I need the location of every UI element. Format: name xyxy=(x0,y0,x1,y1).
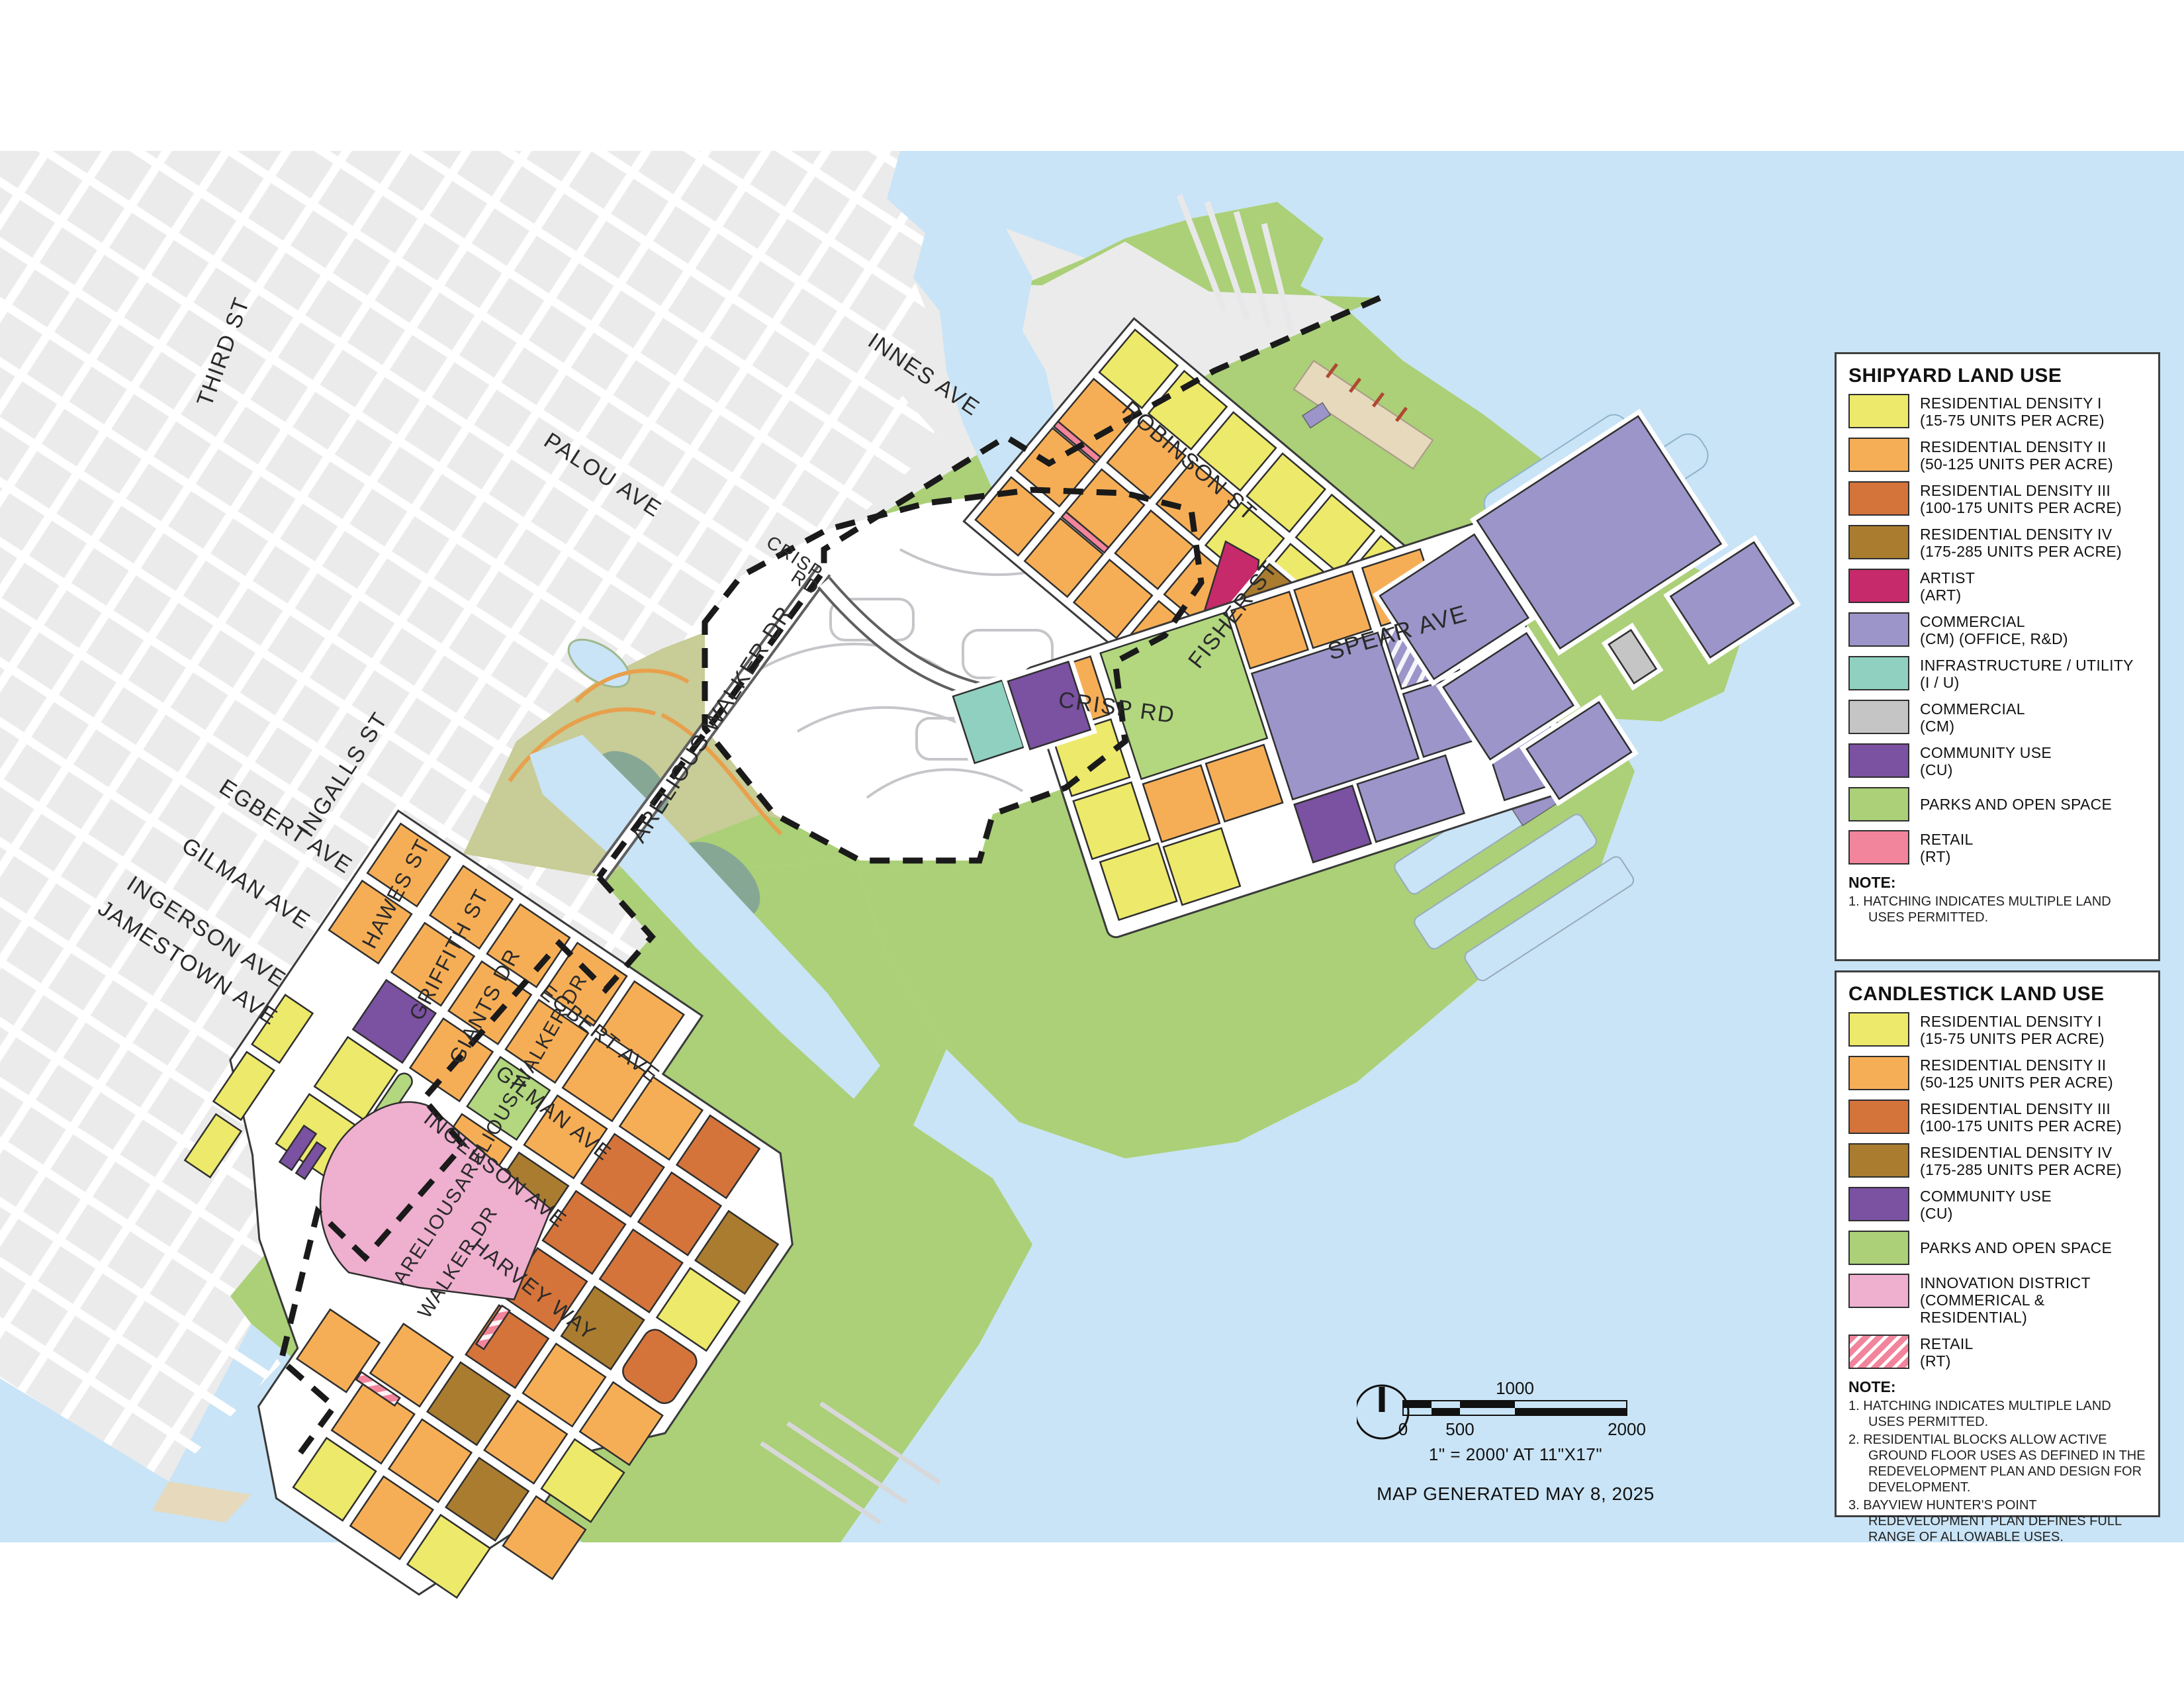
legend-item-label: RESIDENTIAL DENSITY IV(175-285 UNITS PER… xyxy=(1920,525,2122,560)
legend-swatch xyxy=(1848,1231,1909,1265)
legend-item: RESIDENTIAL DENSITY III(100-175 UNITS PE… xyxy=(1848,1100,2146,1135)
legend-swatch xyxy=(1848,743,1909,778)
legend-swatch xyxy=(1848,830,1909,865)
legend-item-label: COMMUNITY USE(CU) xyxy=(1920,1187,2052,1222)
legend-note-line: 1. HATCHING INDICATES MULTIPLE LAND USES… xyxy=(1848,1398,2146,1430)
legend-item-label: RESIDENTIAL DENSITY IV(175-285 UNITS PER… xyxy=(1920,1143,2122,1178)
legend-swatch xyxy=(1848,787,1909,821)
scale-ratio-note: 1" = 2000' AT 11"X17" xyxy=(1357,1444,1674,1465)
legend-item: RESIDENTIAL DENSITY III(100-175 UNITS PE… xyxy=(1848,481,2146,516)
legend-item-label: ARTIST(ART) xyxy=(1920,569,1975,604)
scale-bar: 1000 0 500 2000 xyxy=(1357,1376,1701,1442)
legend-item-label: RESIDENTIAL DENSITY III(100-175 UNITS PE… xyxy=(1920,481,2122,516)
legend-candlestick-items: RESIDENTIAL DENSITY I(15-75 UNITS PER AC… xyxy=(1848,1012,2146,1370)
legend-item: RETAIL(RT) xyxy=(1848,830,2146,865)
scale-label-1000: 1000 xyxy=(1496,1378,1534,1398)
legend-item-label: COMMUNITY USE(CU) xyxy=(1920,743,2052,778)
legend-item: COMMUNITY USE(CU) xyxy=(1848,743,2146,778)
legend-swatch xyxy=(1848,700,1909,734)
legend-item-label: PARKS AND OPEN SPACE xyxy=(1920,796,2112,813)
scale-bar-group: 1000 0 500 2000 1" = 2000' AT 11"X17" MA… xyxy=(1357,1376,1727,1505)
legend-swatch xyxy=(1848,394,1909,428)
legend-item-label: COMMERCIAL(CM) xyxy=(1920,700,2025,735)
legend-swatch xyxy=(1848,1056,1909,1090)
legend-note-line: 3. BAYVIEW HUNTER'S POINT REDEVELOPMENT … xyxy=(1848,1497,2146,1545)
legend-item-label: RESIDENTIAL DENSITY I(15-75 UNITS PER AC… xyxy=(1920,1012,2105,1047)
scale-label-0: 0 xyxy=(1398,1419,1408,1439)
legend-item: INNOVATION DISTRICT(COMMERICAL & RESIDEN… xyxy=(1848,1274,2146,1326)
legend-note-title: NOTE: xyxy=(1848,874,2146,892)
legend-item-label: COMMERCIAL(CM) (OFFICE, R&D) xyxy=(1920,612,2068,647)
map-generated-date: MAP GENERATED MAY 8, 2025 xyxy=(1357,1483,1674,1505)
legend-swatch xyxy=(1848,1335,1909,1369)
legend-item-label: RESIDENTIAL DENSITY I(15-75 UNITS PER AC… xyxy=(1920,394,2105,429)
legend-shipyard-items: RESIDENTIAL DENSITY I(15-75 UNITS PER AC… xyxy=(1848,394,2146,865)
legend-swatch xyxy=(1848,525,1909,559)
legend-item-label: INFRASTRUCTURE / UTILITY(I / U) xyxy=(1920,656,2134,691)
legend-note-line: 2. RESIDENTIAL BLOCKS ALLOW ACTIVE GROUN… xyxy=(1848,1432,2146,1495)
legend-item: COMMUNITY USE(CU) xyxy=(1848,1187,2146,1222)
legend-item-label: RESIDENTIAL DENSITY II(50-125 UNITS PER … xyxy=(1920,438,2113,473)
legend-item: COMMERCIAL(CM) xyxy=(1848,700,2146,735)
legend-item: RESIDENTIAL DENSITY I(15-75 UNITS PER AC… xyxy=(1848,1012,2146,1047)
scale-label-2000: 2000 xyxy=(1608,1419,1646,1439)
legend-swatch xyxy=(1848,1274,1909,1308)
legend-candlestick-title: CANDLESTICK LAND USE xyxy=(1848,983,2146,1006)
legend-candlestick: CANDLESTICK LAND USE RESIDENTIAL DENSITY… xyxy=(1835,970,2160,1517)
legend-item: COMMERCIAL(CM) (OFFICE, R&D) xyxy=(1848,612,2146,647)
legend-item: RESIDENTIAL DENSITY I(15-75 UNITS PER AC… xyxy=(1848,394,2146,429)
legend-item-label: INNOVATION DISTRICT(COMMERICAL & RESIDEN… xyxy=(1920,1274,2146,1326)
legend-swatch xyxy=(1848,481,1909,516)
legend-note-line: 1. HATCHING INDICATES MULTIPLE LAND USES… xyxy=(1848,894,2146,925)
legend-swatch xyxy=(1848,438,1909,472)
legend-item: RESIDENTIAL DENSITY II(50-125 UNITS PER … xyxy=(1848,1056,2146,1091)
legend-item: RETAIL(RT) xyxy=(1848,1335,2146,1370)
legend-shipyard: SHIPYARD LAND USE RESIDENTIAL DENSITY I(… xyxy=(1835,352,2160,961)
legend-item: PARKS AND OPEN SPACE xyxy=(1848,787,2146,821)
legend-swatch xyxy=(1848,1143,1909,1178)
legend-item-label: RESIDENTIAL DENSITY II(50-125 UNITS PER … xyxy=(1920,1056,2113,1091)
legend-shipyard-title: SHIPYARD LAND USE xyxy=(1848,365,2146,387)
legend-item: RESIDENTIAL DENSITY IV(175-285 UNITS PER… xyxy=(1848,525,2146,560)
land-use-map-page: THIRD STPALOU AVEINNES AVEINGALLS STEGBE… xyxy=(0,0,2184,1688)
legend-swatch xyxy=(1848,612,1909,647)
legend-item: PARKS AND OPEN SPACE xyxy=(1848,1231,2146,1265)
legend-note-title: NOTE: xyxy=(1848,1378,2146,1396)
legend-item-label: RESIDENTIAL DENSITY III(100-175 UNITS PE… xyxy=(1920,1100,2122,1135)
legend-item: RESIDENTIAL DENSITY II(50-125 UNITS PER … xyxy=(1848,438,2146,473)
legend-swatch xyxy=(1848,1100,1909,1134)
legend-item: INFRASTRUCTURE / UTILITY(I / U) xyxy=(1848,656,2146,691)
legend-swatch xyxy=(1848,1012,1909,1047)
legend-swatch xyxy=(1848,1187,1909,1221)
legend-swatch xyxy=(1848,569,1909,603)
legend-swatch xyxy=(1848,656,1909,690)
legend-item: ARTIST(ART) xyxy=(1848,569,2146,604)
legend-item-label: PARKS AND OPEN SPACE xyxy=(1920,1239,2112,1256)
legend-item-label: RETAIL(RT) xyxy=(1920,830,1974,865)
legend-item-label: RETAIL(RT) xyxy=(1920,1335,1974,1370)
legend-shipyard-notes: NOTE:1. HATCHING INDICATES MULTIPLE LAND… xyxy=(1848,874,2146,925)
scale-segments xyxy=(1403,1401,1627,1415)
legend-item: RESIDENTIAL DENSITY IV(175-285 UNITS PER… xyxy=(1848,1143,2146,1178)
scale-label-500: 500 xyxy=(1445,1419,1474,1439)
legend-candlestick-notes: NOTE:1. HATCHING INDICATES MULTIPLE LAND… xyxy=(1848,1378,2146,1545)
